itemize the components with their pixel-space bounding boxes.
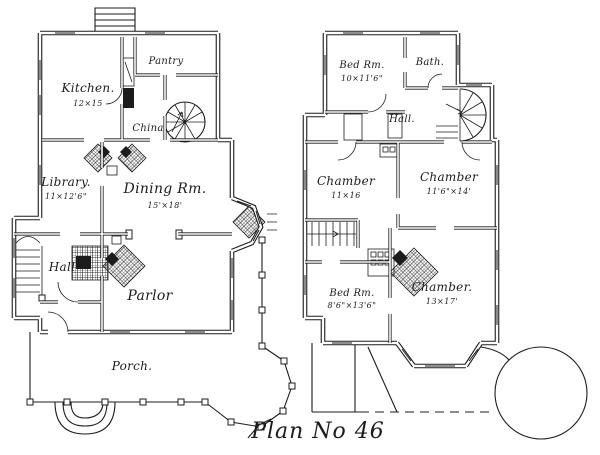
mid-chimney bbox=[380, 144, 398, 157]
china-label: China bbox=[132, 123, 163, 134]
library-dims: 11×12'6" bbox=[45, 192, 87, 201]
first-floor-door-swings bbox=[48, 88, 122, 332]
chamber-right-label: Chamber bbox=[420, 170, 479, 184]
bedroom-back-label: Bed Rm. bbox=[328, 288, 374, 299]
pantry-label: Pantry bbox=[148, 56, 184, 67]
first-floor-plan: Kitchen. 12×15 Pantry China Library. 11×… bbox=[14, 8, 295, 434]
spiral-staircase bbox=[165, 102, 205, 142]
dining-dims: 15'×18' bbox=[148, 201, 183, 210]
hall-label: Hall bbox=[48, 260, 76, 274]
library-label: Library. bbox=[40, 175, 91, 189]
parlor-fireplace bbox=[72, 236, 145, 287]
second-floor-plan: Bed Rm. 10×11'6" Bath. Hall. Chamber 11×… bbox=[305, 33, 587, 439]
bedroom-front-label: Bed Rm. bbox=[338, 60, 384, 71]
dining-fireplace bbox=[84, 144, 146, 175]
blueprint-page: Kitchen. 12×15 Pantry China Library. 11×… bbox=[0, 0, 600, 455]
porch-label: Porch. bbox=[111, 359, 153, 373]
bath-label: Bath. bbox=[415, 57, 444, 68]
bedroom-back-dims: 8'6"×13'6" bbox=[328, 301, 377, 310]
hall-staircase bbox=[16, 237, 45, 302]
chamber-rear-dims: 13×17' bbox=[426, 297, 458, 306]
chamber-left-dims: 11×16 bbox=[331, 191, 361, 200]
winder-staircase bbox=[436, 89, 486, 141]
chamber-right-dims: 11'6"×14' bbox=[427, 187, 472, 196]
main-staircase bbox=[307, 222, 356, 246]
parlor-label: Parlor bbox=[126, 288, 173, 304]
upper-hall-label: Hall. bbox=[388, 114, 415, 125]
bedroom-front-dims: 10×11'6" bbox=[341, 74, 383, 83]
plan-title: Plan No 46 bbox=[250, 419, 385, 444]
tower-roof-circle bbox=[495, 347, 587, 439]
dining-parlor-columns bbox=[126, 230, 182, 239]
kitchen-dims: 12×15 bbox=[73, 99, 103, 108]
kitchen-closet bbox=[123, 58, 134, 108]
back-steps bbox=[95, 8, 135, 33]
chamber-left-label: Chamber bbox=[317, 174, 376, 188]
title-block: Plan No 46 bbox=[248, 419, 385, 444]
chamber-rear-label: Chamber. bbox=[412, 280, 473, 294]
front-steps bbox=[55, 402, 115, 434]
dining-label: Dining Rm. bbox=[123, 181, 207, 197]
kitchen-label: Kitchen. bbox=[60, 81, 114, 95]
floor-plan-drawing: Kitchen. 12×15 Pantry China Library. 11×… bbox=[0, 0, 600, 455]
